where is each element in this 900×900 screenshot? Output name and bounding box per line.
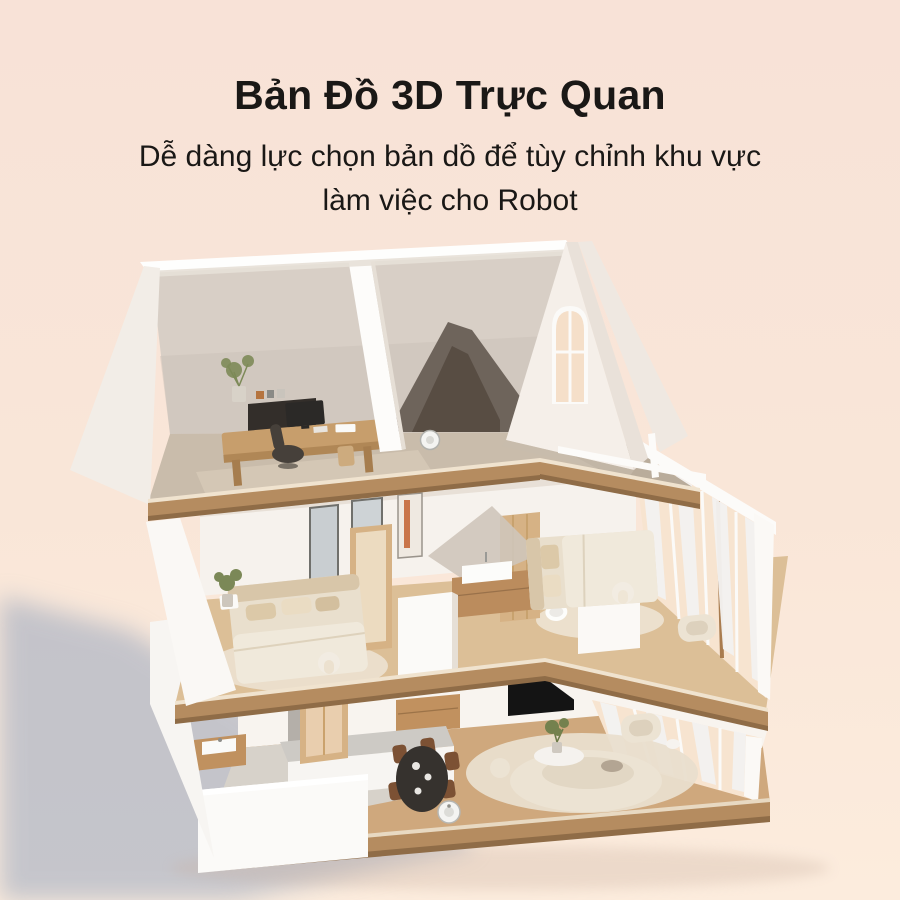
attic (70, 240, 706, 521)
side-table (666, 739, 680, 749)
curved-sofa (510, 750, 662, 812)
arch-bench-right (612, 582, 634, 604)
page-title: Bản Đồ 3D Trực Quan (0, 72, 900, 119)
utility-sink (194, 734, 246, 771)
gable-arched-window (552, 306, 588, 404)
subtitle-line-2: làm việc cho Robot (0, 179, 900, 223)
pouf (490, 758, 510, 778)
roof-left-plane (70, 266, 160, 505)
bathroom-knee-wall (398, 592, 452, 676)
stool (337, 445, 355, 466)
monitor (285, 400, 325, 427)
master-bed (227, 573, 369, 684)
subtitle-line-1: Dễ dàng lực chọn bản dồ để tùy chỉnh khu… (0, 135, 900, 179)
guest-bed (526, 530, 659, 611)
robot-vacuum-ground (438, 801, 460, 823)
dining-table (396, 746, 448, 812)
robot-vacuum-attic (421, 431, 440, 450)
header: Bản Đồ 3D Trực Quan Dễ dàng lực chọn bản… (0, 72, 900, 223)
arch-bench-left (318, 652, 340, 674)
promo-banner: Bản Đồ 3D Trực Quan Dễ dàng lực chọn bản… (0, 0, 900, 900)
page-subtitle: Dễ dàng lực chọn bản dồ để tùy chỉnh khu… (0, 135, 900, 223)
